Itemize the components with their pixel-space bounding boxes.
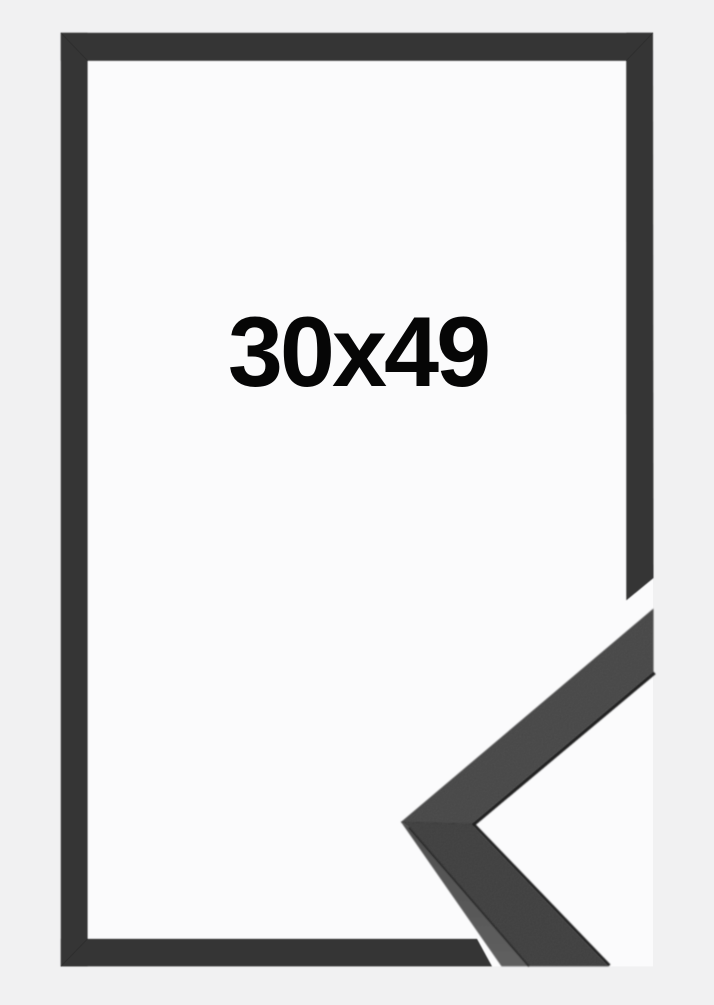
svg-text:30x49: 30x49 <box>228 296 488 407</box>
